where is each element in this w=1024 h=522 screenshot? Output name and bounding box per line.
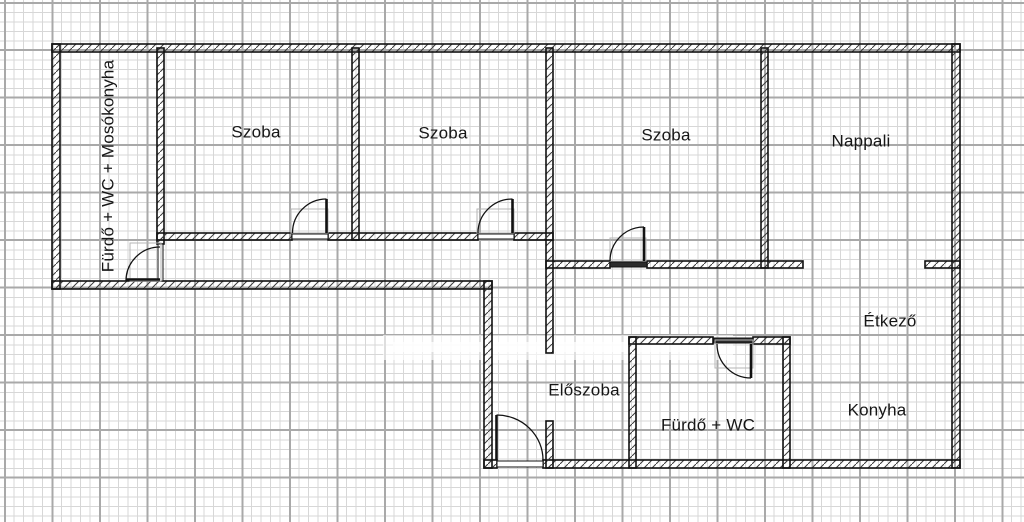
room-label-living-room: Nappali <box>831 133 890 150</box>
arc-room2-door <box>478 199 513 233</box>
wall-outer-bottom-b <box>543 460 960 468</box>
arc-room1-door <box>293 199 327 233</box>
wall-entry-stub <box>546 421 553 468</box>
floorplan-canvas: Fürdő + WC + Mosókonyha Szoba Szoba Szob… <box>0 0 1024 522</box>
wall-room3-living <box>761 48 768 268</box>
wall-corridor-c <box>514 233 553 240</box>
wall-bath-left <box>629 337 636 468</box>
room-label-kitchen: Konyha <box>848 402 907 419</box>
wall-laundry-right <box>157 48 164 244</box>
arc-entrance-door <box>497 415 544 460</box>
room-label-room-2: Szoba <box>418 125 467 142</box>
wall-under-living <box>925 261 960 268</box>
threshold-room2-door <box>478 234 514 239</box>
room-label-bath-wc: Fürdő + WC <box>661 417 755 434</box>
frame-room2-door <box>477 209 514 233</box>
wall-outer-right <box>952 44 960 468</box>
arc-laundry-door <box>126 247 160 281</box>
wall-under-room3-a <box>546 261 610 268</box>
arc-bath-door <box>717 344 751 378</box>
wall-under-room3-b <box>647 261 803 268</box>
arc-room3-door <box>610 227 644 261</box>
frame-laundry-door <box>130 243 161 281</box>
wall-outer-top <box>52 44 960 52</box>
wall-lobby-left <box>484 281 492 468</box>
floorplan-drawing <box>0 0 1024 522</box>
wall-bath-right <box>783 337 790 468</box>
wall-bath-top-a <box>629 337 713 344</box>
wall-outer-left <box>52 44 60 289</box>
room-label-dining: Étkező <box>863 313 916 330</box>
room-label-hallway: Előszoba <box>548 382 620 399</box>
threshold-entrance-door <box>497 461 543 467</box>
wall-corridor-a <box>157 233 292 240</box>
room-label-room-3: Szoba <box>641 127 690 144</box>
frame-room1-door <box>291 209 328 233</box>
room-label-room-1: Szoba <box>231 124 280 141</box>
wall-corridor-b <box>328 233 478 240</box>
threshold-room1-door <box>292 234 328 239</box>
wall-room2-room3 <box>546 48 553 353</box>
wall-outer-bottom-a <box>484 460 497 468</box>
walls <box>52 44 960 468</box>
threshold-room3-door <box>610 262 647 267</box>
wall-bottom-left-wing <box>52 281 492 289</box>
room-label-bath-wc-laundry: Fürdő + WC + Mosókonyha <box>100 60 117 272</box>
frame-bath-door <box>715 340 753 368</box>
wall-room1-room2 <box>352 48 359 240</box>
